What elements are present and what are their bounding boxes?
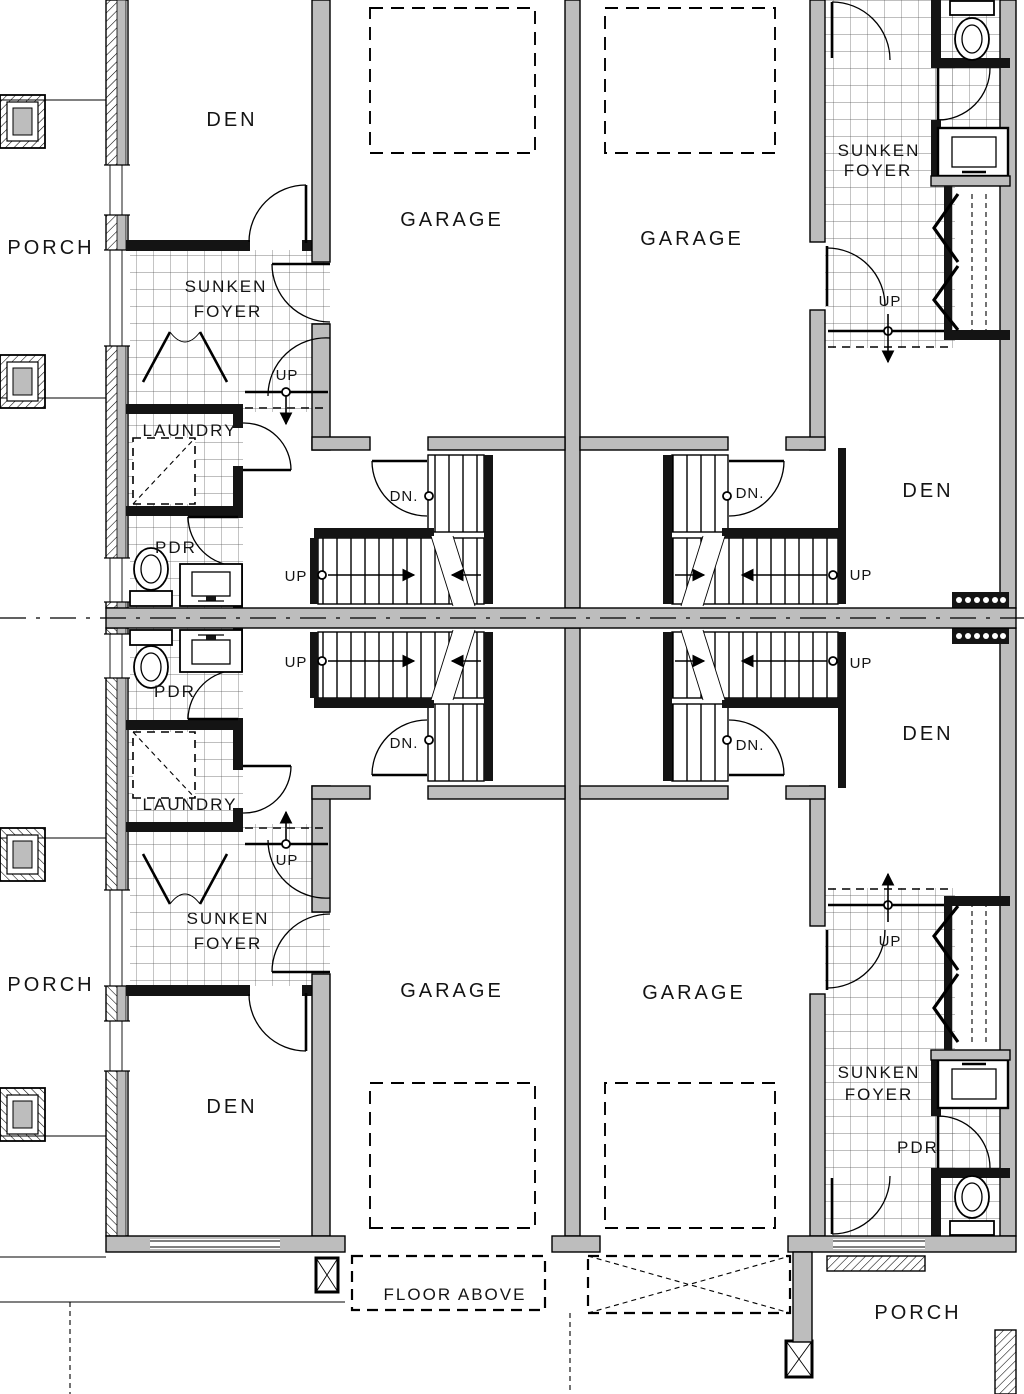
den-wall xyxy=(838,448,846,604)
direction-label-up: UP xyxy=(285,654,308,671)
room-label-porch: PORCH xyxy=(874,1302,961,1324)
lower-unit-pair xyxy=(0,628,1016,1236)
room-label-pdr: PDR xyxy=(897,1138,939,1157)
porch-corner-wall xyxy=(995,1330,1016,1394)
room-label-foyer: FOYER xyxy=(194,302,263,321)
entry-opening xyxy=(104,250,130,346)
left-exterior-wall xyxy=(104,0,130,608)
room-label-sunken: SUNKEN xyxy=(185,277,268,296)
garage-door-x-band xyxy=(588,1256,790,1313)
direction-label-dn: DN. xyxy=(736,485,765,502)
horizontal-party-wall xyxy=(0,608,1024,628)
foyer-closet xyxy=(934,186,1010,340)
direction-label-up: UP xyxy=(276,852,299,869)
unit-party-wall-vertical xyxy=(565,0,580,608)
room-label-pdr: PDR xyxy=(155,538,197,557)
upper-unit-pair xyxy=(0,0,1016,608)
room-label-den: DEN xyxy=(206,1096,257,1118)
sink-vanity xyxy=(931,120,1008,183)
porch-column xyxy=(0,95,45,148)
room-label-laundry: LAUNDRY xyxy=(143,421,238,440)
room-label-laundry: LAUNDRY xyxy=(143,795,238,814)
garage-stall-dashed xyxy=(605,8,775,153)
porch-post xyxy=(316,1258,338,1292)
room-label-foyer: FOYER xyxy=(194,934,263,953)
room-label-sunken: SUNKEN xyxy=(838,141,921,160)
front-wall-and-site xyxy=(0,1236,1016,1394)
annotation-floor-above: FLOOR ABOVE xyxy=(384,1285,527,1304)
direction-label-dn: DN. xyxy=(736,737,765,754)
room-label-foyer: FOYER xyxy=(845,1085,914,1104)
porch-edge-hatched xyxy=(827,1256,925,1271)
garage-stall-dashed xyxy=(370,8,535,153)
right-stairs xyxy=(663,455,846,606)
room-label-pdr: PDR xyxy=(154,682,196,701)
room-label-porch: PORCH xyxy=(7,237,94,259)
floor-plan-page: PORCH DEN GARAGE SUNKEN FOYER UP LAUNDRY… xyxy=(0,0,1024,1394)
direction-label-dn: DN. xyxy=(390,488,419,505)
room-label-den: DEN xyxy=(206,109,257,131)
porch-side-wall xyxy=(793,1252,812,1342)
den-door-swing xyxy=(249,185,306,242)
room-label-porch: PORCH xyxy=(7,974,94,996)
room-label-foyer: FOYER xyxy=(844,161,913,180)
garage-walls xyxy=(312,0,825,608)
pdr-window xyxy=(104,558,130,602)
porch-column xyxy=(0,355,45,408)
foyer-tile-floor xyxy=(126,250,330,412)
direction-label-up: UP xyxy=(879,293,902,310)
direction-label-up: UP xyxy=(850,655,873,672)
porch-post xyxy=(786,1341,812,1377)
room-label-den: DEN xyxy=(902,723,953,745)
room-label-den: DEN xyxy=(902,480,953,502)
sink-vanity xyxy=(180,564,242,606)
dn-flight xyxy=(428,455,484,532)
direction-label-up: UP xyxy=(285,568,308,585)
direction-label-up: UP xyxy=(276,367,299,384)
direction-label-dn: DN. xyxy=(390,735,419,752)
left-stairs xyxy=(310,455,493,606)
room-label-garage: GARAGE xyxy=(642,982,746,1004)
dn-flight xyxy=(672,455,728,532)
den-wall-and-door xyxy=(126,185,312,251)
room-label-garage: GARAGE xyxy=(400,209,504,231)
den-window xyxy=(104,165,130,215)
right-exterior-wall xyxy=(1000,0,1016,608)
party-wall-vent xyxy=(952,592,1009,608)
room-label-garage: GARAGE xyxy=(640,228,744,250)
room-label-sunken: SUNKEN xyxy=(187,909,270,928)
room-label-sunken: SUNKEN xyxy=(838,1063,921,1082)
direction-label-up: UP xyxy=(879,933,902,950)
floor-plan-drawing: PORCH DEN GARAGE SUNKEN FOYER UP LAUNDRY… xyxy=(0,0,1024,1394)
direction-label-up: UP xyxy=(850,567,873,584)
room-label-garage: GARAGE xyxy=(400,980,504,1002)
